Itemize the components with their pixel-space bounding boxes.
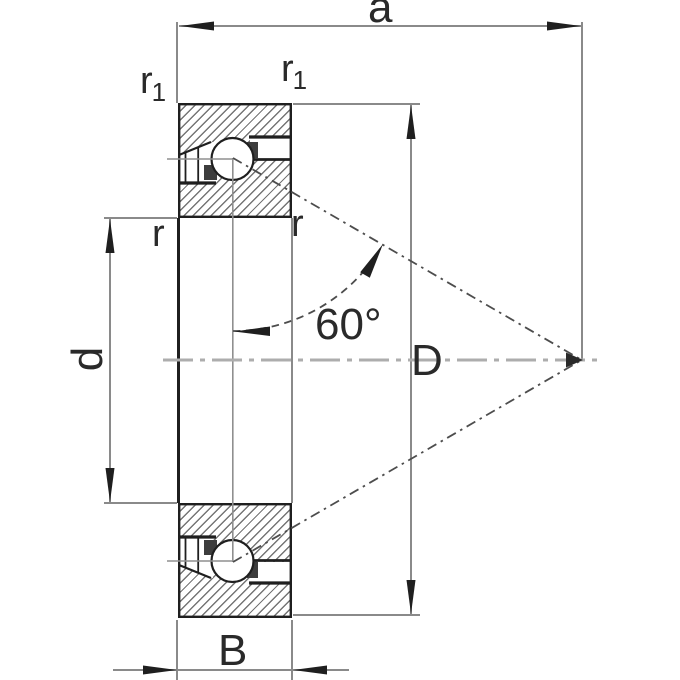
upper-contact-line — [233, 158, 580, 359]
upper-raceway-shoulder-edge — [179, 142, 211, 155]
label-r1-middle-sub: 1 — [293, 65, 307, 95]
label-d: d — [66, 337, 110, 381]
label-contact-angle: 60° — [315, 303, 382, 347]
D-arrow-up — [407, 105, 416, 139]
label-B: B — [218, 629, 247, 673]
label-D: D — [411, 339, 443, 383]
D-arrow-down — [407, 580, 416, 614]
d-arrow-up — [106, 219, 115, 253]
label-r1-middle: r1 — [281, 50, 308, 88]
B-arrow-right — [293, 666, 327, 675]
label-r-left: r — [152, 215, 165, 253]
bearing-drawing-canvas: a r1 r1 r r d D B 60° — [0, 0, 680, 680]
lower-raceway-shoulder-edge — [179, 565, 211, 578]
lower-contact-line — [233, 361, 580, 562]
label-r1-left-base: r — [140, 60, 153, 102]
B-arrow-left — [143, 666, 177, 675]
arc-arrow-bottom — [234, 327, 270, 337]
label-a: a — [368, 0, 392, 30]
apex-arrow — [566, 353, 583, 368]
label-r1-left-sub: 1 — [152, 77, 166, 107]
label-r1-middle-base: r — [281, 48, 294, 90]
label-r-right: r — [291, 205, 304, 243]
label-r1-left: r1 — [140, 62, 167, 100]
a-arrow-left — [180, 22, 214, 31]
arc-arrow-top — [360, 244, 383, 278]
d-arrow-down — [106, 468, 115, 502]
a-arrow-right — [547, 22, 581, 31]
